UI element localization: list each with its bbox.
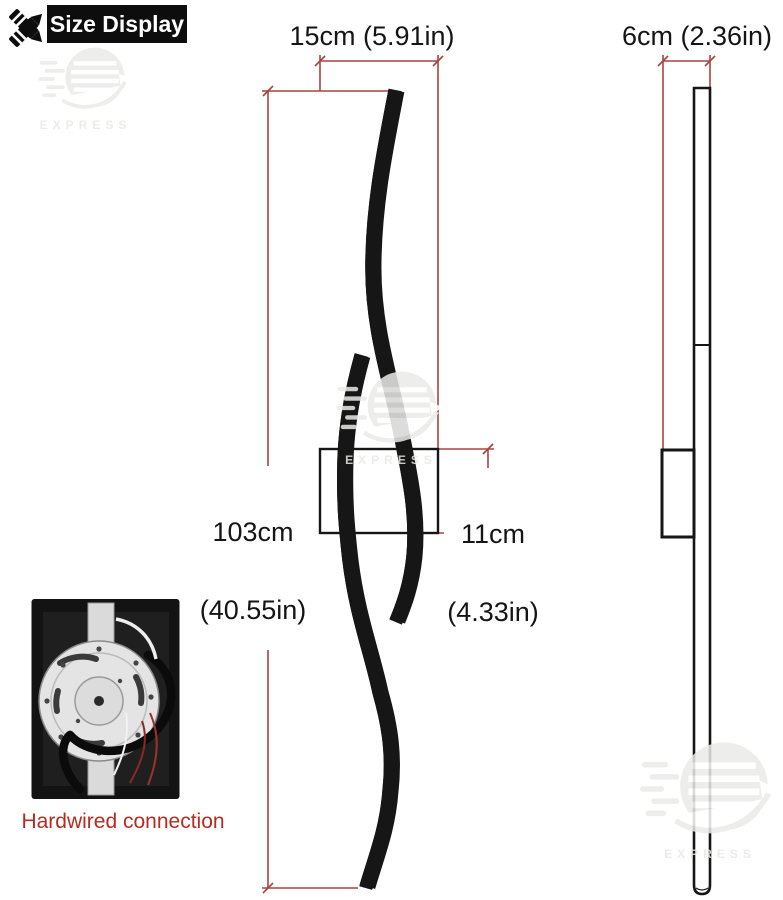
size-display-badge-label: Size Display: [50, 11, 184, 38]
page-root: { "badge": { "label": "Size Display" }, …: [0, 0, 783, 900]
dimension-bracket-cm: 11cm: [444, 521, 542, 547]
side-view-lamp: [662, 88, 710, 894]
dimension-depth-label: 6cm (2.36in): [604, 23, 783, 49]
side-lamp-bar: [694, 88, 710, 894]
dimension-bracket-in: (4.33in): [444, 599, 542, 625]
hardwired-connection-caption: Hardwired connection: [13, 810, 233, 834]
dimension-height-in: (40.55in): [196, 597, 310, 623]
dimension-width-label: 15cm (5.91in): [279, 23, 465, 49]
front-lamp-tubes: [344, 90, 417, 889]
dimension-bracket-label: 11cm (4.33in): [444, 468, 542, 652]
dimension-height-cm: 103cm: [196, 519, 310, 545]
hardwired-connection-photo: [30, 593, 182, 805]
side-wall-bracket: [662, 450, 694, 537]
dimension-height-label: 103cm (40.55in): [196, 466, 310, 650]
size-display-badge: Size Display: [47, 5, 187, 43]
